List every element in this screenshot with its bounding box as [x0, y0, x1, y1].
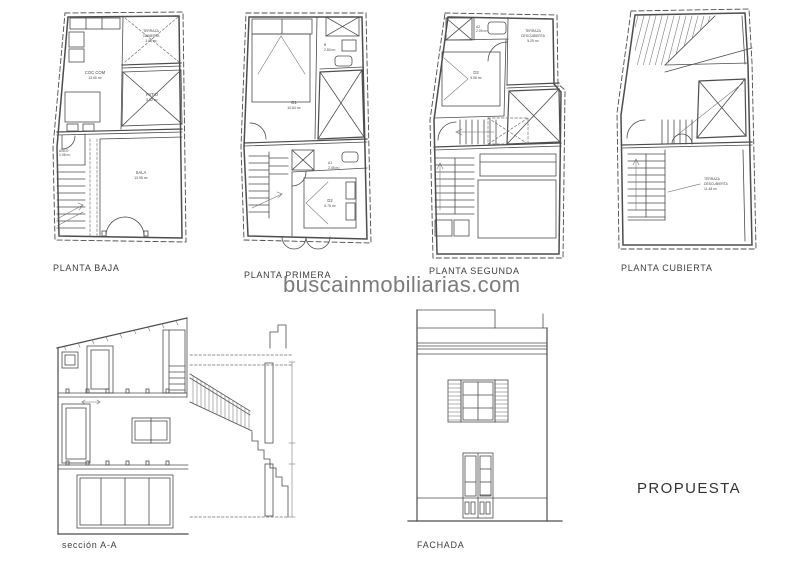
watermark-text: buscainmobiliarias.com: [283, 272, 520, 298]
stairs-segunda: [438, 120, 496, 144]
area-patio: 5.02 m²: [146, 98, 158, 102]
planta-cubierta-label: PLANTA CUBIERTA: [621, 263, 713, 273]
label-terraza-desc-2: DESCUBIERTA: [521, 34, 546, 38]
label-coc-com: COC COM: [85, 70, 106, 75]
stairs-cubierta: [627, 120, 692, 144]
label-terraza-desc-cub-2: DESCUBIERTA: [704, 182, 729, 186]
label-terraza-desc-cub: TERRAZA: [704, 177, 721, 181]
planta-primera-outline: [241, 13, 371, 243]
planta-segunda-outline: [430, 13, 565, 258]
stairs-primera: [249, 152, 288, 218]
planta-baja-mid-wall: [57, 129, 182, 135]
area-sala: 13.95 m²: [134, 176, 148, 180]
roof-terrace-cubierta: [628, 150, 745, 241]
balcony-doors: [282, 237, 330, 249]
room-bano-a1: [292, 150, 358, 170]
planta-baja-outline: [53, 12, 186, 242]
entry-double-door: [102, 217, 148, 236]
label-terraza-desc: TERRAZA: [525, 29, 542, 33]
proposal-title: PROPUESTA: [637, 480, 741, 497]
room-bano-b: [320, 17, 363, 69]
stairs-baja: [57, 172, 85, 228]
label-b: B: [324, 43, 327, 47]
label-sala: SALA: [136, 170, 147, 175]
area-terraza-cubierta: 3.06 m²: [145, 39, 157, 43]
facade-door: [463, 453, 493, 518]
area-terraza-desc: 5.25 m²: [527, 39, 539, 43]
patio-shaft-3: [676, 79, 746, 138]
area-b: 2.80 m²: [324, 48, 336, 52]
section-first-floor: [62, 400, 170, 463]
planta-baja-drawing: TERRAZA CUBIERTA 3.06 m² COC COM 13.65 m…: [40, 8, 200, 256]
label-terraza-cubierta-2: CUBIERTA: [143, 34, 161, 38]
label-d3: D3: [473, 70, 479, 75]
facade-envelope: [408, 310, 562, 521]
room-dormitorio-1: [250, 17, 317, 139]
area-aseo: 1.08 m²: [59, 153, 71, 157]
section-drawing: [40, 312, 315, 557]
area-terraza-desc-cub: 11.48 m²: [704, 187, 718, 191]
label-d1: D1: [291, 100, 297, 105]
planta-cubierta-outline: [617, 9, 756, 249]
label-d2: D2: [327, 198, 333, 203]
section-label: sección A-A: [62, 540, 117, 550]
planta-primera-drawing: D1 10.84 m² B 2.80 m² A1 2.05 m² D2 6.75…: [232, 6, 382, 264]
room-sala: [90, 137, 182, 236]
area-coc-com: 13.65 m²: [88, 76, 102, 80]
facade-window: [448, 380, 508, 422]
planta-primera-mid-wall: [244, 139, 367, 146]
roof-terrace-segunda: [435, 154, 556, 238]
area-a1: 2.05 m²: [328, 166, 340, 170]
room-terraza-descubierta-2: [507, 83, 559, 88]
planta-cubierta-drawing: TERRAZA DESCUBIERTA 11.48 m²: [612, 4, 780, 266]
facade-label: FACHADA: [417, 540, 464, 550]
planta-cubierta-mid-wall: [622, 142, 752, 148]
label-a1: A1: [328, 161, 332, 165]
label-patio: PATIO: [146, 92, 159, 97]
label-terraza-cubierta: TERRAZA: [143, 29, 160, 33]
section-attic: [62, 330, 185, 393]
area-d3: 9.08 m²: [470, 76, 482, 80]
planta-cubierta-room-labels: TERRAZA DESCUBIERTA 11.48 m²: [704, 177, 729, 191]
area-d2: 6.75 m²: [324, 204, 336, 208]
area-a2: 2.05 m²: [476, 29, 488, 33]
patio-shaft: [318, 70, 364, 139]
facade-drawing: [400, 302, 570, 550]
blueprint-sheet: TERRAZA CUBIERTA 3.06 m² COC COM 13.65 m…: [0, 0, 800, 566]
section-ground-floor: [77, 475, 173, 528]
area-d1: 10.84 m²: [287, 106, 301, 110]
planta-segunda-drawing: A2 2.05 m² D3 9.08 m² TERRAZA DESCUBIERT…: [422, 6, 574, 266]
planta-baja-label: PLANTA BAJA: [53, 263, 120, 273]
section-right-dimensions: [190, 325, 295, 517]
planta-primera-room-labels: D1 10.84 m² B 2.80 m² A1 2.05 m² D2 6.75…: [287, 43, 340, 208]
